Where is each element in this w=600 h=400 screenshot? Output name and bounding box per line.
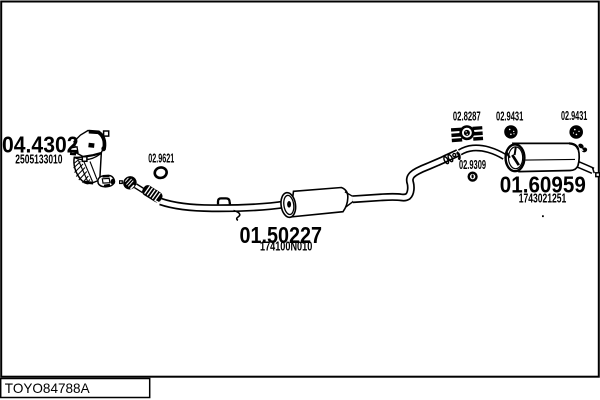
svg-text:TOYO84788A: TOYO84788A [5,380,90,396]
svg-text:02.9431: 02.9431 [561,109,587,123]
svg-text:02.9431: 02.9431 [496,110,523,124]
svg-text:174100N010: 174100N010 [260,240,312,254]
svg-text:2505133010: 2505133010 [15,152,62,166]
svg-text:1743021251: 1743021251 [519,192,567,206]
svg-text:02.9309: 02.9309 [459,158,486,172]
svg-text:02.8287: 02.8287 [453,110,481,124]
svg-text:02.9621: 02.9621 [148,152,174,166]
